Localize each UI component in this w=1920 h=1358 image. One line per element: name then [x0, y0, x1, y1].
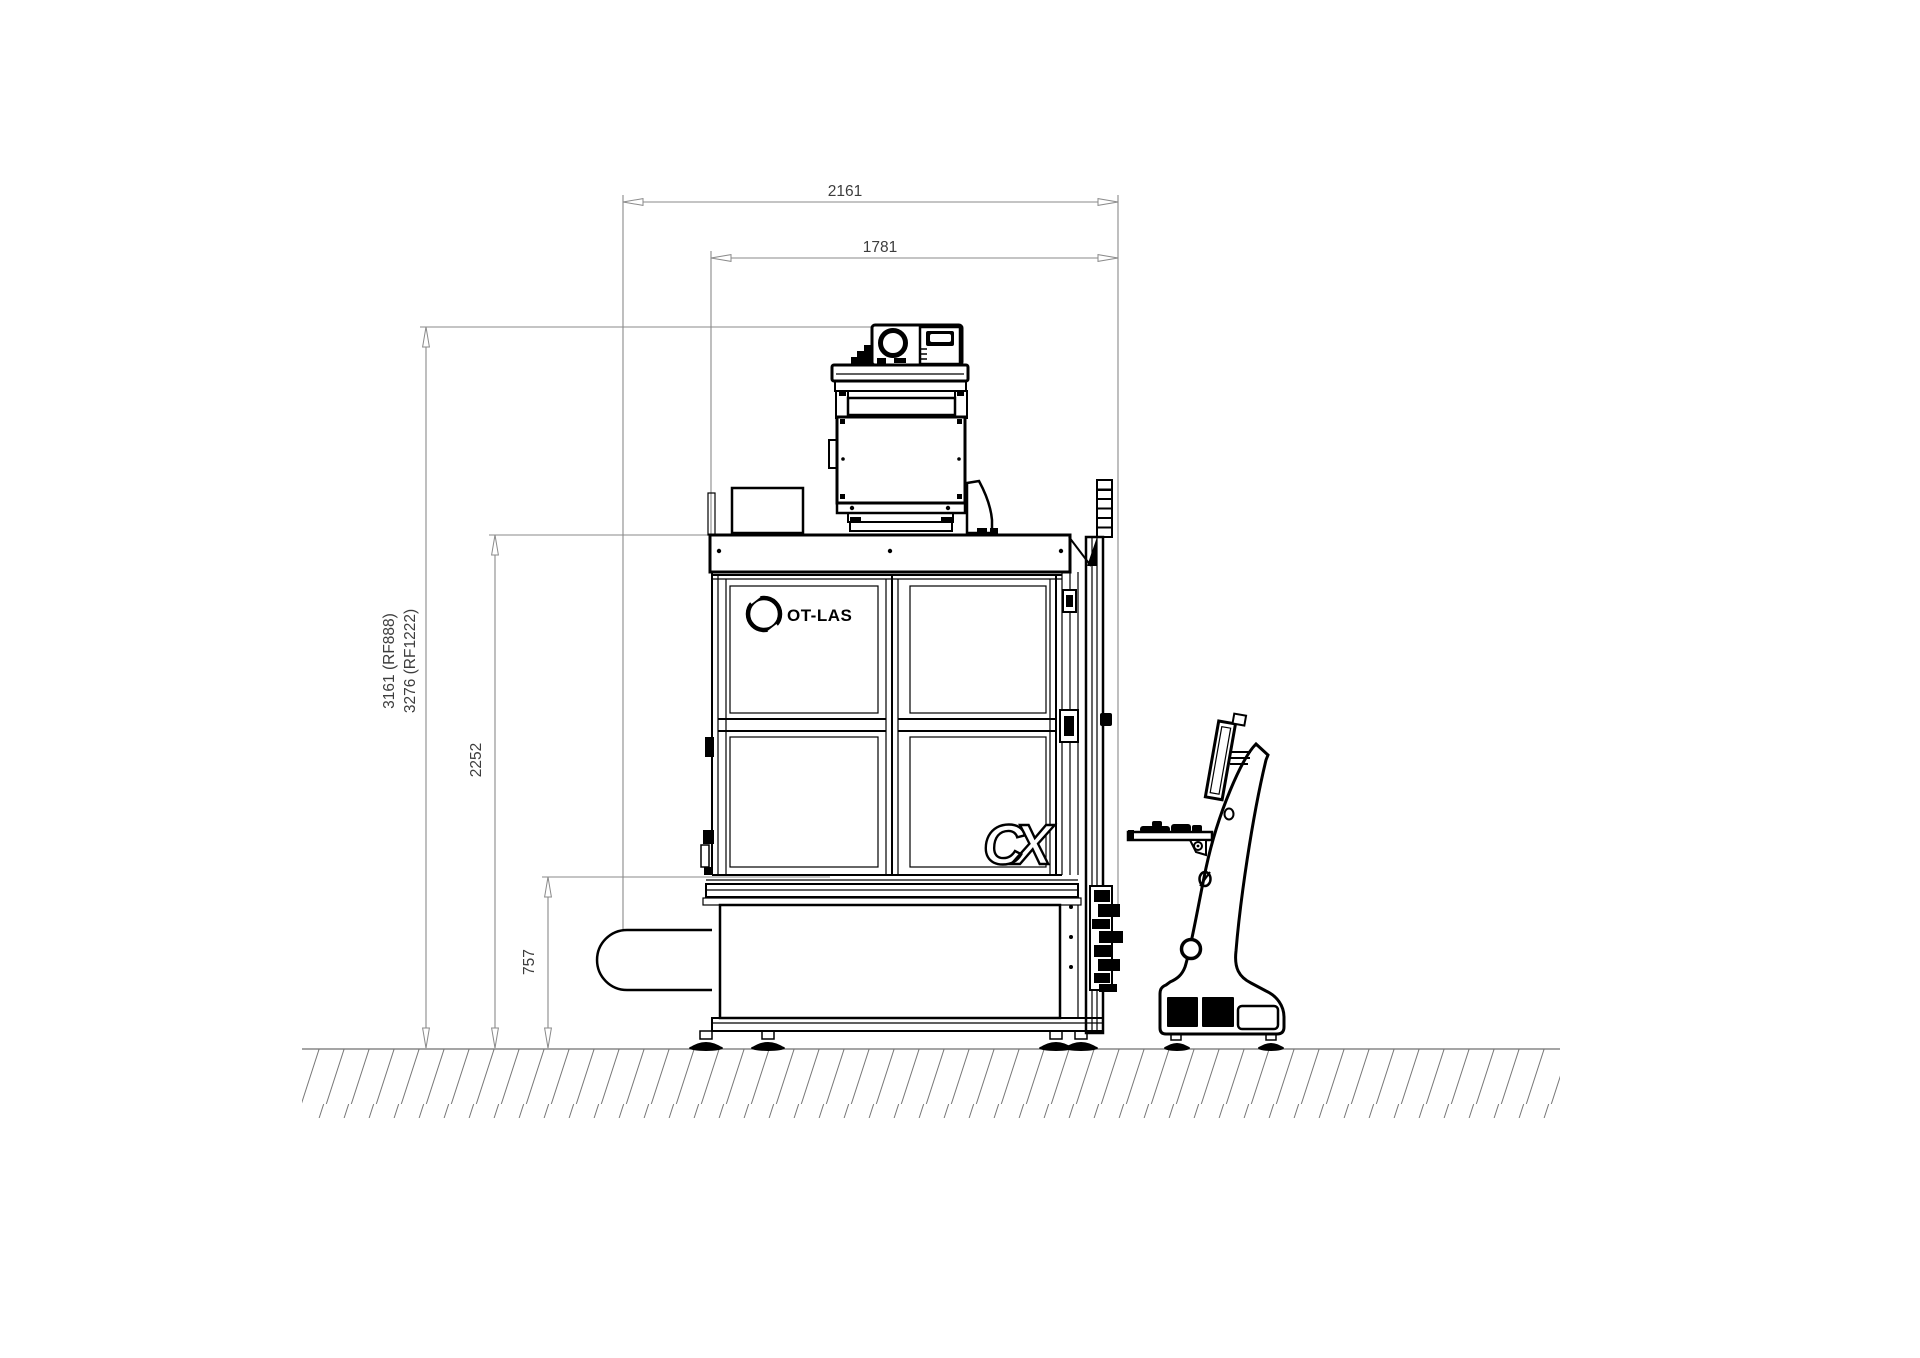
dimension-label-height-body: 2252: [468, 743, 485, 777]
dimension-label-height-overall-rf1222: 3276 (RF1222): [402, 609, 419, 713]
manufacturer-logo-text: OT-LAS: [787, 606, 852, 625]
exhaust-port-cylinder: [597, 930, 712, 990]
dimension-label-width-body: 1781: [863, 239, 897, 256]
roof-duct-box: [732, 488, 803, 533]
cable-chain-strip: [1097, 480, 1112, 537]
dimension-label-height-overall-rf888: 3161 (RF888): [381, 613, 398, 709]
fan-icon: [881, 331, 906, 356]
dimension-label-width-overall: 2161: [828, 183, 862, 200]
console-base-module-2: [1202, 997, 1234, 1027]
ground-hatch: [302, 1049, 1560, 1118]
rear-column-connector: [1100, 713, 1112, 726]
laser-resonator-body: [837, 417, 965, 503]
dimension-label-height-exhaust: 757: [521, 949, 538, 975]
technical-drawing-canvas: 2161 1781 3161 (RF888) 3276 (RF1222) 225…: [0, 0, 1920, 1358]
left-door-hinge: [705, 737, 714, 757]
technical-drawing-page: 2161 1781 3161 (RF888) 3276 (RF1222) 225…: [0, 0, 1920, 1358]
cabinet-top-band: [710, 535, 1070, 572]
console-base-module-1: [1167, 997, 1198, 1027]
left-door-latch: [703, 830, 714, 844]
keyboard: [1140, 826, 1170, 833]
console-base-drawer: [1238, 1006, 1278, 1029]
page-background: [0, 0, 1920, 1358]
